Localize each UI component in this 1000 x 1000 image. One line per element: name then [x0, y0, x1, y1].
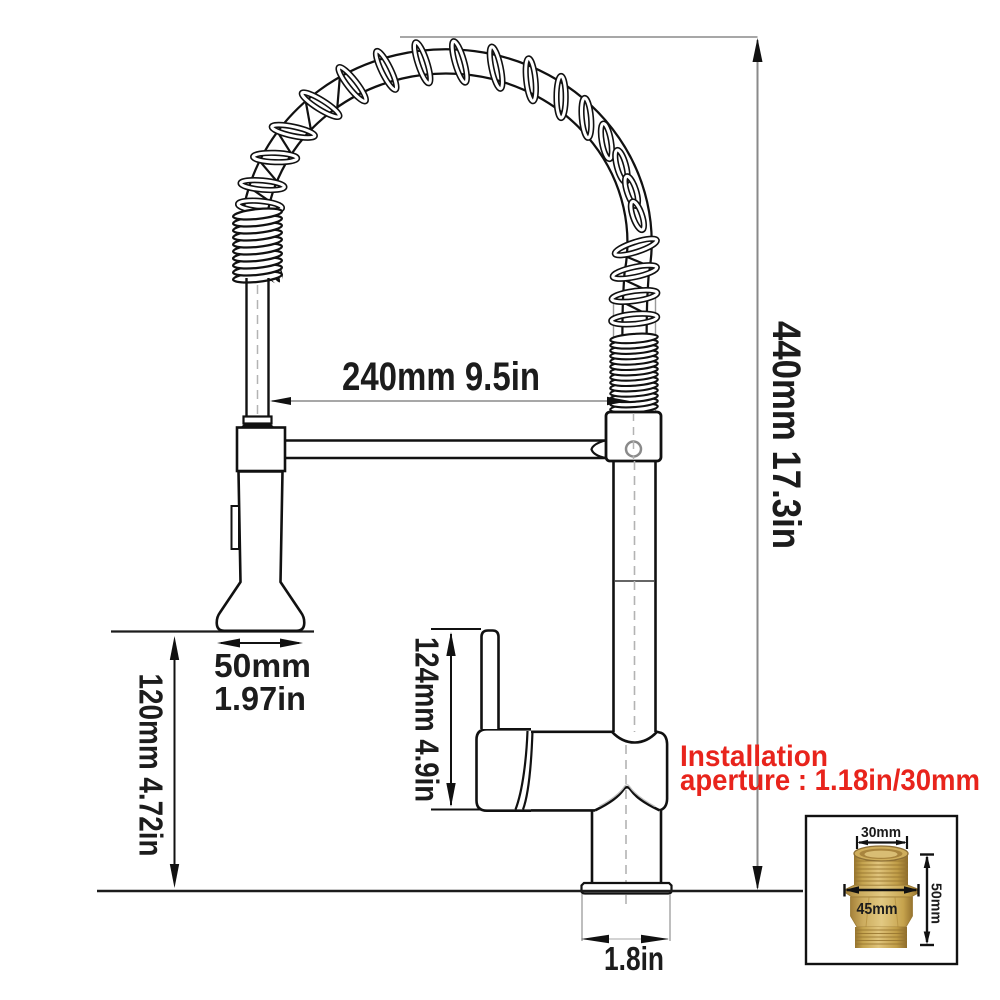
- svg-text:120mm 4.72in: 120mm 4.72in: [133, 674, 170, 857]
- svg-text:50mm: 50mm: [214, 647, 311, 684]
- svg-text:1.97in: 1.97in: [214, 680, 306, 717]
- svg-text:aperture : 1.18in/30mm: aperture : 1.18in/30mm: [680, 764, 980, 797]
- svg-text:440mm 17.3in: 440mm 17.3in: [764, 321, 808, 549]
- svg-text:124mm 4.9in: 124mm 4.9in: [409, 637, 446, 802]
- svg-text:50mm: 50mm: [928, 883, 945, 924]
- svg-text:1.8in: 1.8in: [604, 940, 664, 977]
- svg-text:45mm: 45mm: [857, 901, 898, 918]
- svg-text:240mm 9.5in: 240mm 9.5in: [342, 355, 540, 399]
- svg-text:30mm: 30mm: [861, 824, 901, 841]
